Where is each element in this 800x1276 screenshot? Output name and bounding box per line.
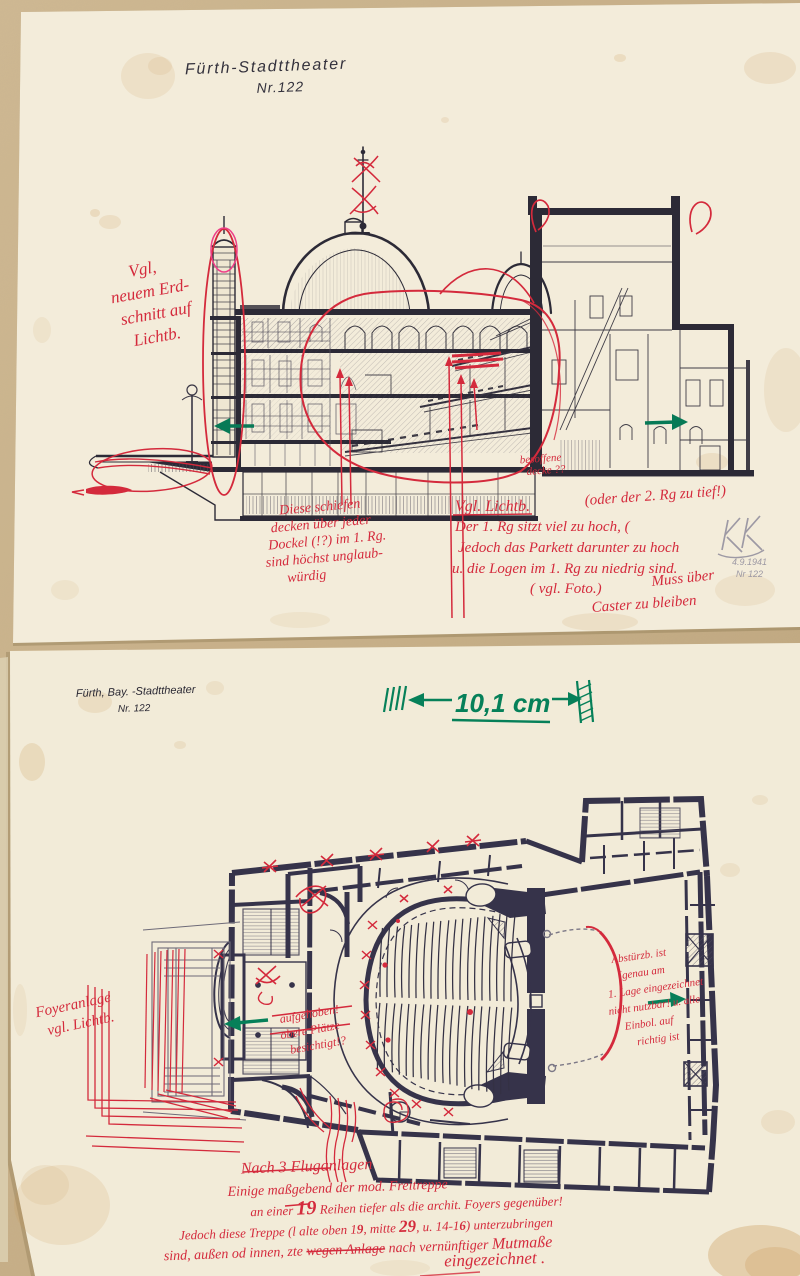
svg-text:10,1 cm: 10,1 cm	[455, 688, 550, 718]
svg-text:u. die Logen im 1. Rg zu niedr: u. die Logen im 1. Rg zu niedrig sind.	[452, 561, 677, 577]
svg-text:eingezeichnet .: eingezeichnet .	[444, 1248, 546, 1271]
svg-text:( vgl. Foto.): ( vgl. Foto.)	[530, 581, 602, 597]
svg-text:Vgl. Lichtb.: Vgl. Lichtb.	[455, 498, 530, 515]
svg-text:Nr. 122: Nr. 122	[118, 703, 151, 715]
svg-text:Nr.122: Nr.122	[256, 78, 304, 96]
svg-text:Nr 122: Nr 122	[736, 569, 763, 579]
svg-text:Jedoch das Parkett darunter zu: Jedoch das Parkett darunter zu hoch	[458, 540, 679, 556]
svg-text:4.9.1941: 4.9.1941	[732, 557, 767, 567]
svg-text:Der 1. Rg sitzt viel zu hoch,: Der 1. Rg sitzt viel zu hoch, (	[454, 519, 631, 535]
